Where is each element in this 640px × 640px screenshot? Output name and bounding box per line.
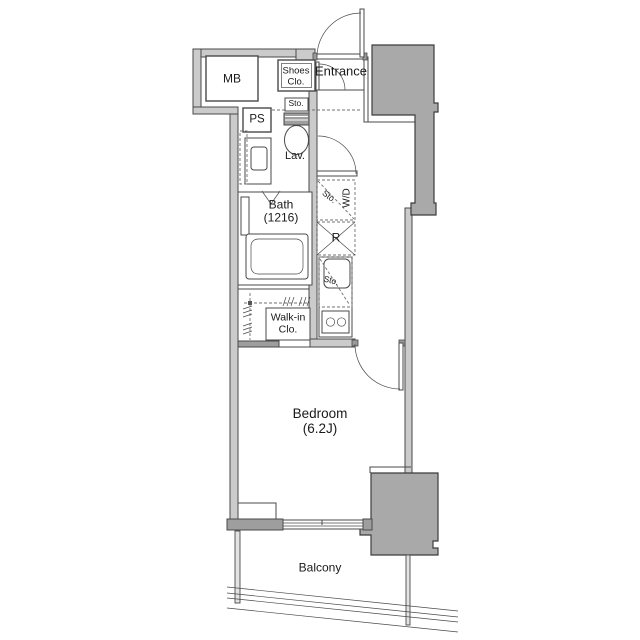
floorplan-page: MB PS Shoes Clo. Entrance Sto. Lav. Bath… (0, 0, 640, 640)
wall-left-main (230, 114, 238, 520)
bathtub-outer (246, 234, 308, 279)
bedroom-corner-step (238, 503, 276, 519)
meter-box-label: MB (223, 72, 241, 85)
closet-sliding-door-panel (238, 341, 280, 347)
walk-in-closet-label: Walk-in Clo. (271, 312, 306, 336)
wall-bottom-stub (363, 519, 372, 530)
balcony-divider-right (406, 555, 410, 625)
toilet-tank (284, 113, 309, 125)
hall-storage-label: Sto. (288, 99, 303, 109)
closet-sliding-door-track (279, 340, 310, 347)
balcony-divider-left (235, 531, 240, 603)
wall-right-main (405, 208, 412, 473)
hall-door-leaf (317, 171, 357, 176)
vanity-sink (251, 147, 267, 170)
bedroom-window (283, 520, 363, 529)
wall-left-upper (193, 49, 201, 114)
balcony-edge-line (227, 598, 458, 622)
shoes-closet-label: Shoes Clo. (283, 66, 310, 87)
hanger-marks (299, 297, 310, 306)
bedroom-door-swing-arc (355, 344, 400, 389)
refrigerator-label: R (332, 231, 341, 244)
balcony-edge-line (227, 587, 458, 611)
hanger-marks (243, 323, 252, 334)
hanger-rail-joint (248, 301, 252, 305)
pillar-top-right (372, 45, 438, 215)
entrance-door-swing-arc (317, 13, 361, 57)
washer-dryer-label: W/D (341, 188, 352, 207)
hall-door-swing-arc (318, 136, 356, 174)
bath-ledge (241, 197, 249, 235)
entrance-door-leaf (360, 9, 364, 57)
bedroom-door-leaf (399, 343, 403, 390)
balcony-label: Balcony (299, 561, 342, 574)
pipe-space-label: PS (249, 114, 264, 127)
pillar-bottom-right (360, 473, 438, 555)
bedroom-door (352, 340, 405, 390)
entrance-label: Entrance (315, 65, 367, 80)
lavatory-label: Lav. (285, 150, 305, 162)
wall-below-mb (193, 107, 238, 114)
bedroom-label: Bedroom (6.2J) (293, 406, 348, 436)
hanger-marks (243, 306, 252, 317)
wall-kitchen-bottom (309, 339, 355, 347)
hanger-marks (283, 297, 294, 306)
entrance-threshold (315, 54, 365, 59)
balcony-edge-line (227, 593, 458, 617)
wall-bottom-left (227, 519, 283, 530)
balcony-edge-line (227, 608, 458, 632)
door-post (313, 53, 317, 60)
floorplan-drawing (0, 0, 640, 640)
bath-label: Bath (1216) (264, 199, 299, 226)
